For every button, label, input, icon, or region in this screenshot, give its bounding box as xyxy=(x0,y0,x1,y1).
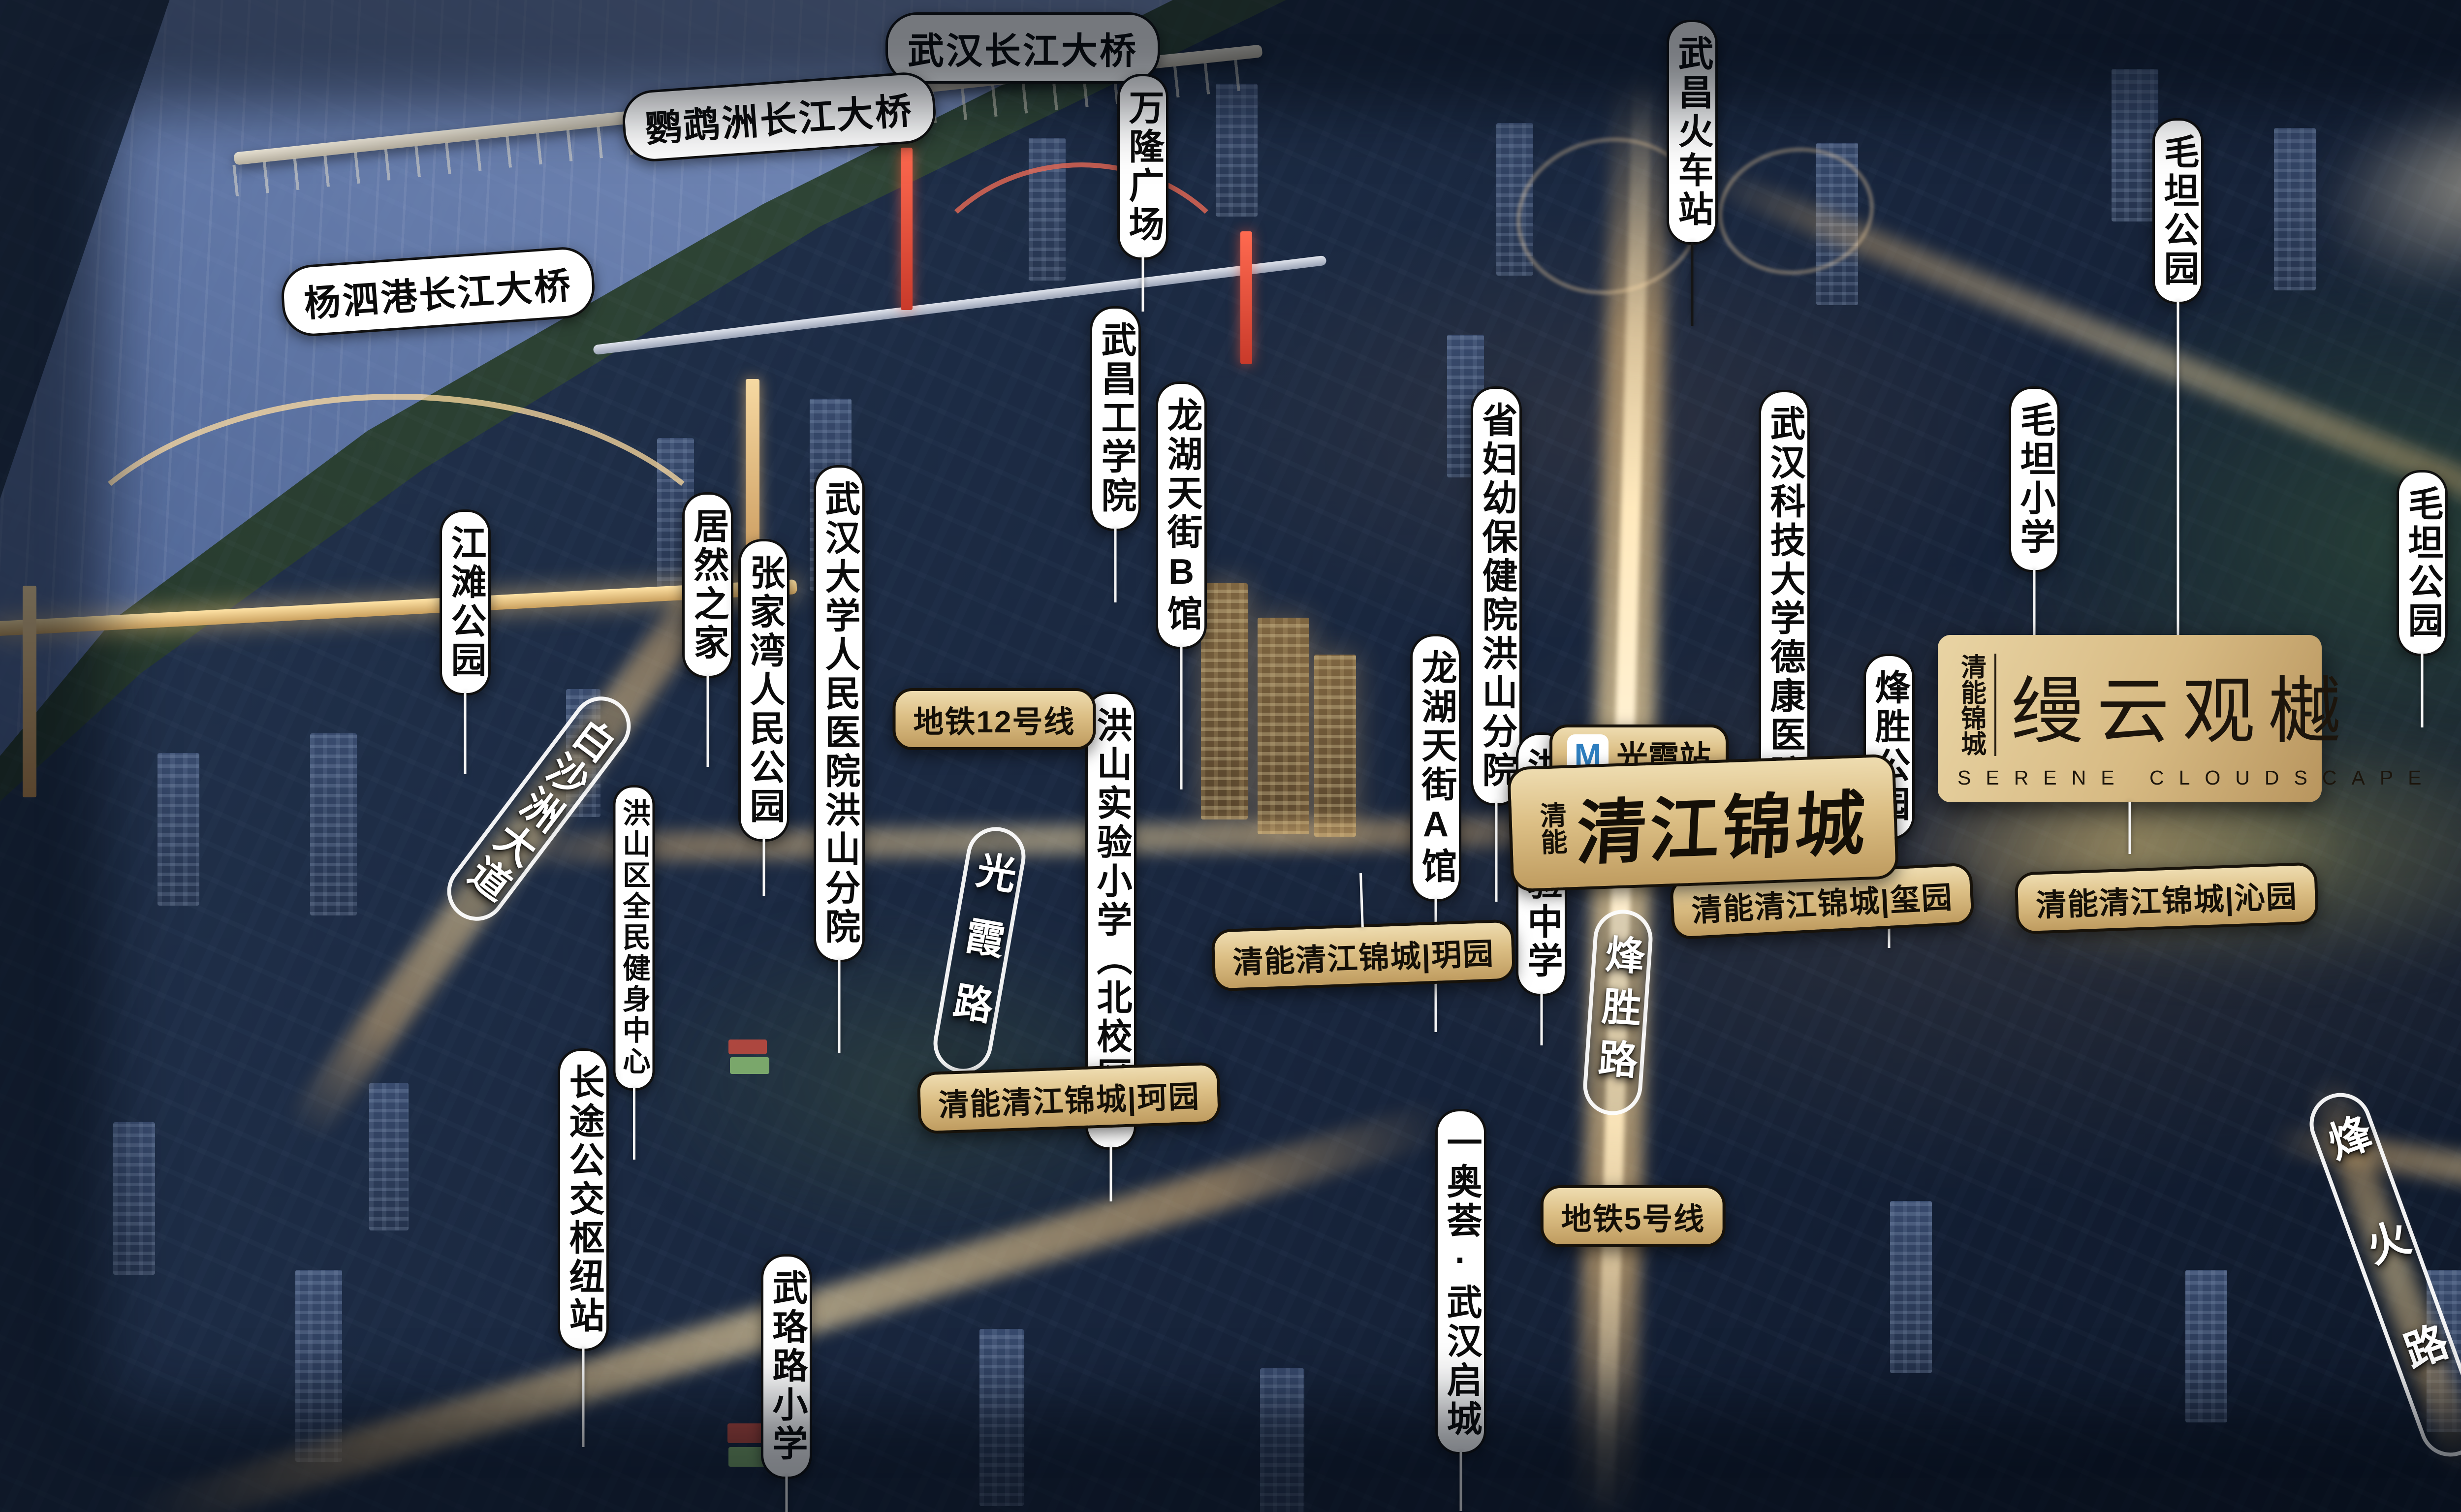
label-qingjiang-jincheng-qinyuan: 清能清江锦城|沁园 xyxy=(2014,862,2319,934)
label-wuhan-university-peoples-hospital-hongshan: 武汉大学人民医院洪山分院 xyxy=(814,465,865,962)
label-maotan-park-east: 毛坦公园 xyxy=(2397,470,2448,656)
label-stem xyxy=(1114,529,1117,602)
label-stem xyxy=(1460,1452,1462,1511)
building-tower xyxy=(113,1122,155,1275)
building-tower xyxy=(158,753,199,906)
label-stem xyxy=(582,1349,585,1447)
building-tower xyxy=(2185,1270,2227,1422)
label-stem xyxy=(707,676,709,767)
building-tower xyxy=(2274,128,2316,290)
building-tower xyxy=(1216,84,1258,217)
label-wust-dekang-hospital: 武汉科技大学德康医院 xyxy=(1759,390,1810,809)
building-tower xyxy=(1314,655,1356,837)
label-qingjiang-jincheng-yueyuan: 清能清江锦城|玥园 xyxy=(1211,919,1515,991)
project-name: 清江锦城 xyxy=(1575,766,1871,878)
label-stem xyxy=(838,960,841,1053)
label-qingjiang-jincheng-keyuan: 清能清江锦城|珂园 xyxy=(916,1062,1221,1134)
building-tower xyxy=(295,1270,342,1462)
label-stem xyxy=(1495,803,1498,902)
map-canvas: 清能锦城 缦云观樾 SERENE CLOUDSCAPE 武汉长江大桥鹦鹉洲长江大… xyxy=(0,0,2461,1512)
building-tower xyxy=(1260,1368,1304,1512)
label-longhu-paradise-walk-b: 龙湖天街B馆 xyxy=(1156,381,1207,649)
label-metro-line-5: 地铁5号线 xyxy=(1541,1185,1726,1247)
label-metro-line-12: 地铁12号线 xyxy=(893,688,1096,750)
yangsigang-bridge-tower-west xyxy=(23,586,36,797)
building-tower xyxy=(1258,618,1309,834)
label-stem xyxy=(1691,242,1694,326)
label-stem xyxy=(786,1477,788,1512)
fitness-center-tennis-court xyxy=(730,1057,769,1074)
label-stem xyxy=(633,1088,635,1160)
label-provincial-maternity-hospital-hongshan: 省妇幼保健院洪山分院 xyxy=(1471,386,1522,806)
label-stem xyxy=(2129,802,2131,854)
building-tower xyxy=(1890,1201,1932,1373)
logo-subtitle: SERENE CLOUDSCAPE xyxy=(1957,766,2354,789)
building-tower xyxy=(979,1329,1024,1506)
label-stem xyxy=(763,839,765,896)
label-longhu-paradise-walk-a: 龙湖天街A馆 xyxy=(1410,634,1461,902)
label-zhangjiawan-peoples-park: 张家湾人民公园 xyxy=(738,539,789,842)
building-tower xyxy=(1201,583,1248,819)
building-tower xyxy=(2112,69,2158,221)
label-long-distance-bus-hub: 长途公交枢纽站 xyxy=(558,1048,609,1351)
label-maotan-park-north: 毛坦公园 xyxy=(2152,118,2204,304)
label-stem xyxy=(1180,647,1183,789)
label-stem xyxy=(1142,257,1144,312)
logo-title: 缦云观樾 xyxy=(2011,652,2354,757)
label-hongshan-fitness-center: 洪山区全民健身中心 xyxy=(613,785,655,1091)
label-juran-home: 居然之家 xyxy=(682,492,733,678)
building-tower xyxy=(369,1083,409,1230)
label-stem xyxy=(1110,1147,1112,1201)
fitness-center-basketball-court xyxy=(728,1039,767,1054)
building-tower xyxy=(310,733,357,915)
label-wanlong-plaza: 万隆广场 xyxy=(1117,74,1168,260)
label-wuluo-road-primary-school: 武珞路小学 xyxy=(761,1254,812,1479)
label-jiangtan-park: 江滩公园 xyxy=(440,509,491,695)
label-wuchang-institute-of-technology: 武昌工学院 xyxy=(1090,306,1141,531)
project-prefix: 清能 xyxy=(1537,801,1565,855)
label-maotan-primary-school: 毛坦小学 xyxy=(2009,386,2060,572)
logo-seal-text: 清能锦城 xyxy=(1957,654,1996,756)
label-wuchang-railway-station: 武昌火车站 xyxy=(1667,20,1718,245)
label-qingneng-qingjiang-jincheng: 清能清江锦城 xyxy=(1507,754,1899,892)
label-stem xyxy=(464,693,467,774)
label-stem xyxy=(1541,994,1543,1045)
label-stem xyxy=(2421,654,2424,727)
project-logo: 清能锦城 缦云观樾 SERENE CLOUDSCAPE xyxy=(1938,635,2322,802)
label-aohui-wuhan-qicheng: 一奥荟·武汉启城 xyxy=(1435,1109,1486,1454)
label-wuhan-yangtze-bridge: 武汉长江大桥 xyxy=(885,12,1160,84)
